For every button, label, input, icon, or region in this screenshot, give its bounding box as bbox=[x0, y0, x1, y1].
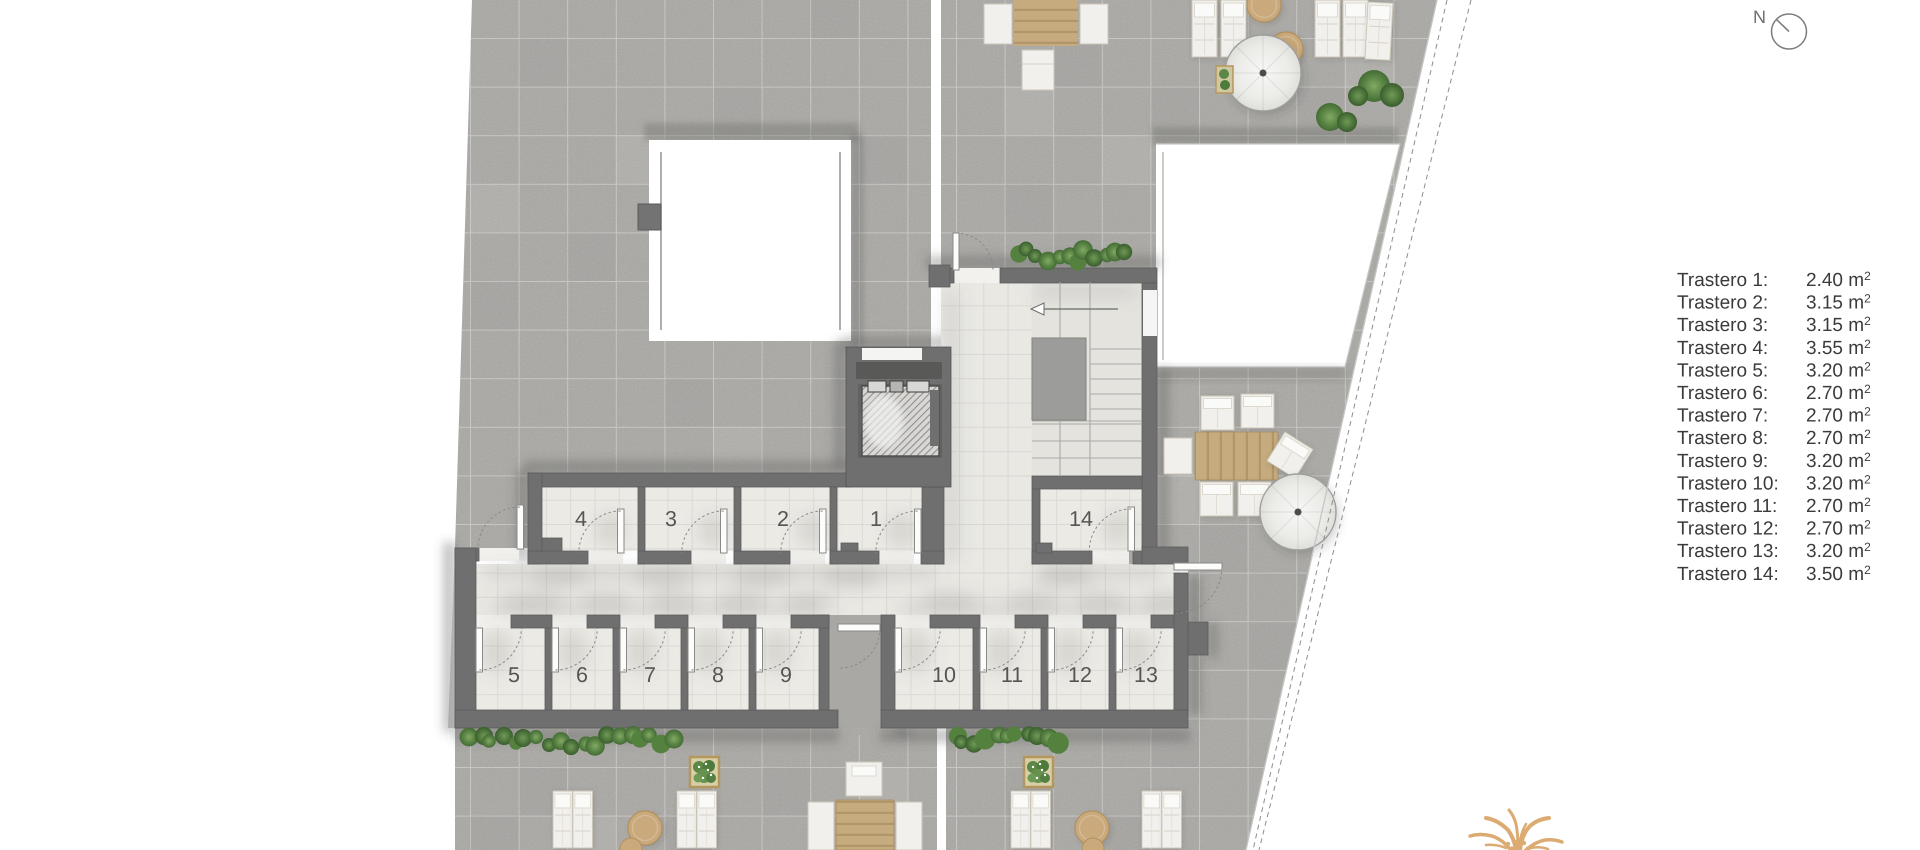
svg-text:1: 1 bbox=[870, 507, 882, 531]
svg-text:Trastero 6:: Trastero 6: bbox=[1677, 383, 1768, 404]
svg-text:2.70 m2: 2.70 m2 bbox=[1806, 427, 1871, 449]
svg-text:3.20 m2: 3.20 m2 bbox=[1806, 450, 1871, 472]
svg-text:2.40 m2: 2.40 m2 bbox=[1806, 269, 1871, 291]
svg-text:Trastero 12:: Trastero 12: bbox=[1677, 519, 1779, 540]
svg-text:N: N bbox=[1753, 7, 1766, 27]
svg-text:Trastero 10:: Trastero 10: bbox=[1677, 473, 1779, 494]
svg-text:Trastero 11:: Trastero 11: bbox=[1677, 496, 1777, 517]
svg-text:Trastero 13:: Trastero 13: bbox=[1677, 541, 1779, 562]
svg-text:2.70 m2: 2.70 m2 bbox=[1806, 495, 1871, 517]
svg-text:7: 7 bbox=[644, 663, 656, 687]
svg-text:2: 2 bbox=[777, 507, 789, 531]
svg-text:Trastero 7:: Trastero 7: bbox=[1677, 406, 1768, 427]
svg-text:Trastero 4:: Trastero 4: bbox=[1677, 338, 1768, 359]
svg-text:Trastero 8:: Trastero 8: bbox=[1677, 428, 1768, 449]
svg-text:2.70 m2: 2.70 m2 bbox=[1806, 382, 1871, 404]
svg-text:14: 14 bbox=[1069, 507, 1093, 531]
svg-text:Trastero 9:: Trastero 9: bbox=[1677, 451, 1768, 472]
svg-text:6: 6 bbox=[576, 663, 588, 687]
svg-text:13: 13 bbox=[1134, 663, 1158, 687]
svg-text:3.50 m2: 3.50 m2 bbox=[1806, 563, 1871, 585]
svg-text:Trastero 14:: Trastero 14: bbox=[1677, 564, 1779, 585]
svg-text:4: 4 bbox=[575, 507, 587, 531]
svg-text:Trastero 3:: Trastero 3: bbox=[1677, 315, 1768, 336]
svg-text:3.55 m2: 3.55 m2 bbox=[1806, 337, 1871, 359]
svg-text:Trastero 2:: Trastero 2: bbox=[1677, 293, 1768, 314]
svg-text:12: 12 bbox=[1068, 663, 1092, 687]
svg-text:3.15 m2: 3.15 m2 bbox=[1806, 292, 1871, 314]
svg-text:11: 11 bbox=[1001, 663, 1023, 687]
svg-text:3.15 m2: 3.15 m2 bbox=[1806, 314, 1871, 336]
svg-text:3: 3 bbox=[665, 507, 677, 531]
svg-text:3.20 m2: 3.20 m2 bbox=[1806, 472, 1871, 494]
svg-text:2.70 m2: 2.70 m2 bbox=[1806, 405, 1871, 427]
svg-text:3.20 m2: 3.20 m2 bbox=[1806, 540, 1871, 562]
svg-text:9: 9 bbox=[780, 663, 792, 687]
svg-text:Trastero 1:: Trastero 1: bbox=[1677, 270, 1768, 291]
svg-text:Trastero 5:: Trastero 5: bbox=[1677, 360, 1768, 381]
svg-text:8: 8 bbox=[712, 663, 724, 687]
svg-text:2.70 m2: 2.70 m2 bbox=[1806, 518, 1871, 540]
svg-text:3.20 m2: 3.20 m2 bbox=[1806, 359, 1871, 381]
svg-text:5: 5 bbox=[508, 663, 520, 687]
svg-text:10: 10 bbox=[932, 663, 956, 687]
